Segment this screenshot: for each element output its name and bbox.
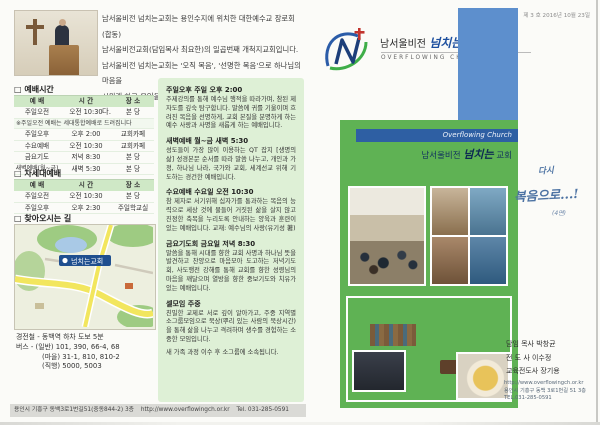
photo-congregation (348, 186, 426, 286)
table-header: 예 배 시 간 장 소 (14, 180, 154, 191)
section-body: 참 제자로 서기위해 십자가를 통과하는 복음의 능력으로 세상 것에 물들어 … (166, 198, 296, 233)
photo-overlay-small (352, 350, 406, 392)
section-title: 금요기도회 금요일 저녁 8:30 (166, 239, 296, 249)
intro-line: 남서울비전 넘치는교회는 용인수지에 위치한 대한예수교 장로회(합동) (102, 11, 302, 42)
cell: 본 당 (112, 152, 154, 163)
col-header: 예 배 (14, 96, 60, 107)
cell: 오전 10:30 (60, 141, 112, 152)
direction-line: 버스 - (일반) 101, 390, 66-4, 68 (16, 343, 166, 353)
intro-line: 남서울비전교회(담임목사 최요한)의 일곱번째 개척지교회입니다. (102, 42, 302, 58)
section-title: 수요예배 수요일 오전 10:30 (166, 187, 296, 197)
table-row: 금요기도 저녁 8:30 본 당 (14, 152, 154, 164)
col-header: 장 소 (112, 180, 154, 191)
contact-tel: TEL.031-285-0591 (504, 395, 598, 403)
cell: 수요예배 (14, 141, 60, 152)
table-row: 주일오전 오전 10:30 본 당 (14, 191, 154, 203)
contact-block: http://www.overflowingch.or.kr 용인시 기흥구 동… (504, 380, 598, 403)
section-title: 새벽예배 월~금 새벽 5:30 (166, 136, 296, 146)
cover-title: 남서울비전 넘치는 교회 (356, 146, 512, 162)
cell: 주일오전 (14, 107, 60, 118)
cross-icon (33, 19, 37, 45)
preacher-figure-head (59, 19, 66, 26)
location-map: 넘치는교회 (14, 224, 156, 330)
section-note: 새 가족 과정 이수 후 소그룹에 소속됩니다. (166, 347, 296, 356)
cell: 교회카페 (112, 129, 154, 140)
col-header: 장 소 (112, 96, 154, 107)
scan-edge-artifact (596, 0, 598, 425)
cover-title-script: 넘치는 (463, 148, 493, 161)
cell: 새벽 5:30 (60, 164, 112, 175)
cover-title-post: 교회 (496, 151, 512, 161)
col-header: 예 배 (14, 180, 60, 191)
table-note: ※주일오전 예배는 세대통합예배로 드려집니다 (14, 119, 154, 130)
direction-line: (직행) 5000, 5003 (16, 362, 166, 372)
photo-bookshelf (370, 324, 416, 346)
cell: 오후 2:00 (60, 129, 112, 140)
cell: 주일오후 (14, 129, 60, 140)
staff-list: 담임 목사 박창균 전 도 사 이수정 교육전도사 장기용 (506, 338, 596, 379)
cross-icon (26, 25, 44, 29)
table-row: 수요예배 오전 10:30 교회카페 (14, 141, 154, 153)
worship-times-title: □ 예배시간 (14, 84, 54, 95)
schedule-section: 셀모임 주중 친밀한 교제로 서로 깊이 알아가고, 주중 지역별 소그룹모임으… (166, 299, 296, 356)
cell: 금요기도 (14, 152, 60, 163)
handwritten-bokeum: 복음으로...! (514, 182, 600, 205)
schedule-section: 새벽예배 월~금 새벽 5:30 성도들이 가장 많이 이용하는 QT 잡지 [… (166, 136, 296, 182)
cell: 오전 10:30 (60, 107, 112, 118)
schedule-panel: 주일오후 주일 오후 2:00 주제강의를 통해 예수님 행적을 따라가며, 참… (158, 78, 304, 402)
cell: 주일오전 (14, 191, 60, 202)
nextgen-title: □ 차세대예배 (14, 168, 61, 179)
schedule-section: 수요예배 수요일 오전 10:30 참 제자로 서기위해 십자가를 통과하는 복… (166, 187, 296, 233)
nextgen-table: 예 배 시 간 장 소 주일오전 오전 10:30 본 당 주일오후 오후 2:… (14, 179, 154, 214)
cell: 본 당 (112, 107, 154, 118)
contact-address: 용인시 기흥구 동백 3로1번길 51 3층 (504, 388, 598, 396)
footer-address: 용인시 기흥구 동백3로1번길51(중동844-2) 3층 (14, 407, 134, 413)
section-body: 말씀을 통해 시대를 향한 교회 사명과 하나님 뜻을 발견하고 찬양으로 마음… (166, 250, 296, 294)
directions-title: □ 찾아오시는 길 (14, 213, 71, 224)
map-label: 넘치는교회 (71, 257, 103, 266)
photo-collage-cell (470, 188, 506, 235)
photo-collage-cell (432, 237, 468, 284)
section-body: 친밀한 교제로 서로 깊이 알아가고, 주중 지역별 소그룹모임으로 묵상(뿌리… (166, 310, 296, 345)
cell: 교회카페 (112, 141, 154, 152)
cell: 본 당 (112, 191, 154, 202)
church-name-pre: 남서울비전 (380, 39, 426, 50)
direction-line: 경전철 - 동백역 하차 도보 5분 (16, 333, 166, 343)
handwritten-dasi: 다시 (538, 161, 594, 177)
cell: 주일오후 (14, 203, 60, 214)
table-row: 주일오전 오전 10:30 본 당 (14, 107, 154, 119)
direction-line: (마을) 31-1, 810, 810-2 (16, 353, 166, 363)
table-row: 주일오후 오후 2:00 교회카페 (14, 129, 154, 141)
cover-blue-block (458, 8, 518, 120)
footer-tel: Tel. 031-285-0591 (237, 407, 289, 413)
col-header: 시 간 (60, 180, 112, 191)
cell: 본 당 (112, 164, 154, 175)
photo-collage-cell (432, 188, 468, 235)
section-body: 성도들이 가장 많이 이용하는 QT 잡지 [생명의 삶] 성경본문 순서를 따… (166, 147, 296, 182)
section-title: 주일오후 주일 오후 2:00 (166, 85, 296, 95)
schedule-section: 주일오후 주일 오후 2:00 주제강의를 통해 예수님 행적을 따라가며, 참… (166, 85, 296, 131)
footer-url: http://www.overflowingch.or.kr (141, 407, 230, 413)
staff-line: 전 도 사 이수정 (506, 352, 596, 366)
col-header: 시 간 (60, 96, 112, 107)
address-footer: 용인시 기흥구 동백3로1번길51(중동844-2) 3층 http://www… (10, 404, 306, 417)
handwritten-note: (4면) (552, 208, 566, 217)
photo-collage (430, 186, 508, 286)
cover-strip: Overflowing Church (356, 129, 518, 142)
section-title: 셀모임 주중 (166, 299, 296, 309)
staff-line: 교육전도사 장기용 (506, 365, 596, 379)
pulpit-photo (14, 10, 98, 76)
cover-title-pre: 남서울비전 (421, 151, 460, 161)
cell: 주일학교실 (112, 203, 154, 214)
photo-collage-cell (470, 237, 506, 284)
church-logo-icon (320, 22, 374, 76)
cell: 오후 2:30 (60, 203, 112, 214)
schedule-section: 금요기도회 금요일 저녁 8:30 말씀을 통해 시대를 향한 교회 사명과 하… (166, 239, 296, 294)
cell: 저녁 8:30 (60, 152, 112, 163)
section-body: 주제강의를 통해 예수님 행적을 따라가며, 참된 제자도를 깊숙 탐구합니다.… (166, 96, 296, 131)
cell: 오전 10:30 (60, 191, 112, 202)
worship-times-table: 예 배 시 간 장 소 주일오전 오전 10:30 본 당 ※주일오전 예배는 … (14, 95, 154, 175)
table-header: 예 배 시 간 장 소 (14, 96, 154, 107)
photo-food (456, 352, 510, 400)
directions-text: 경전철 - 동백역 하차 도보 5분 버스 - (일반) 101, 390, 6… (16, 333, 166, 372)
staff-line: 담임 목사 박창균 (506, 338, 596, 352)
contact-url: http://www.overflowingch.or.kr (504, 380, 598, 388)
pulpit (49, 45, 79, 75)
